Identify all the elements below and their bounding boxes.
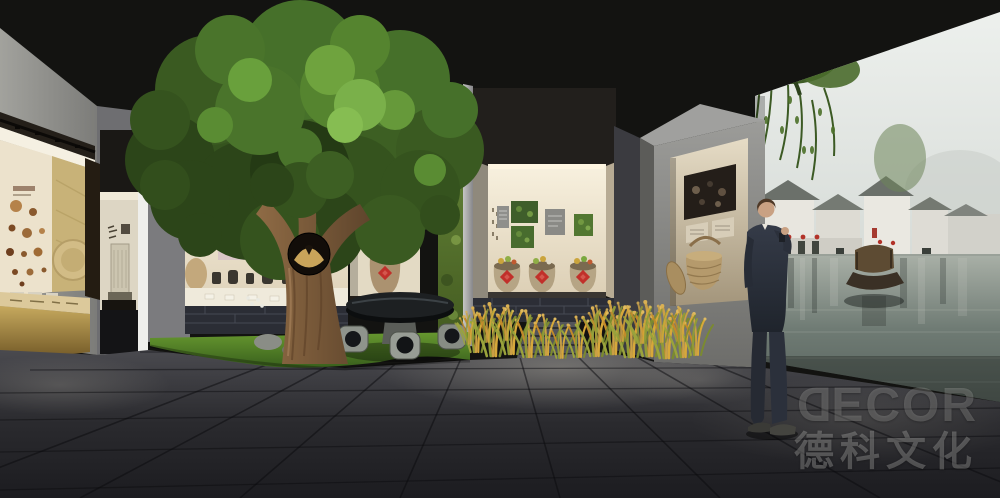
table-top bbox=[346, 292, 454, 318]
straw-hat-emblem bbox=[288, 233, 330, 275]
stone-stool-2 bbox=[390, 332, 420, 359]
render-canvas bbox=[0, 0, 1000, 498]
corridor-light bbox=[100, 192, 138, 200]
display-bench bbox=[102, 300, 136, 310]
dark-divider bbox=[85, 158, 100, 300]
center-fascia bbox=[472, 88, 616, 166]
panel-title-mark bbox=[13, 186, 35, 191]
calligraphy-seal bbox=[121, 224, 130, 234]
stele-base bbox=[108, 292, 132, 300]
center-left-side bbox=[472, 160, 488, 303]
right-trouser bbox=[769, 332, 787, 424]
earthenware-jar bbox=[185, 258, 207, 290]
museum-exhibition-render: DECOR 德科文化 bbox=[0, 0, 1000, 498]
case-shelf bbox=[488, 292, 606, 299]
panel-subtitle-mark bbox=[13, 194, 31, 196]
visitor-hand bbox=[781, 227, 789, 235]
artifact-panel bbox=[0, 140, 52, 298]
corridor-floor bbox=[100, 310, 138, 354]
center-light-glow bbox=[490, 164, 604, 169]
stone-tea-table bbox=[338, 292, 466, 362]
garden-rock bbox=[254, 334, 282, 350]
winnowing-basket-center bbox=[61, 248, 85, 272]
